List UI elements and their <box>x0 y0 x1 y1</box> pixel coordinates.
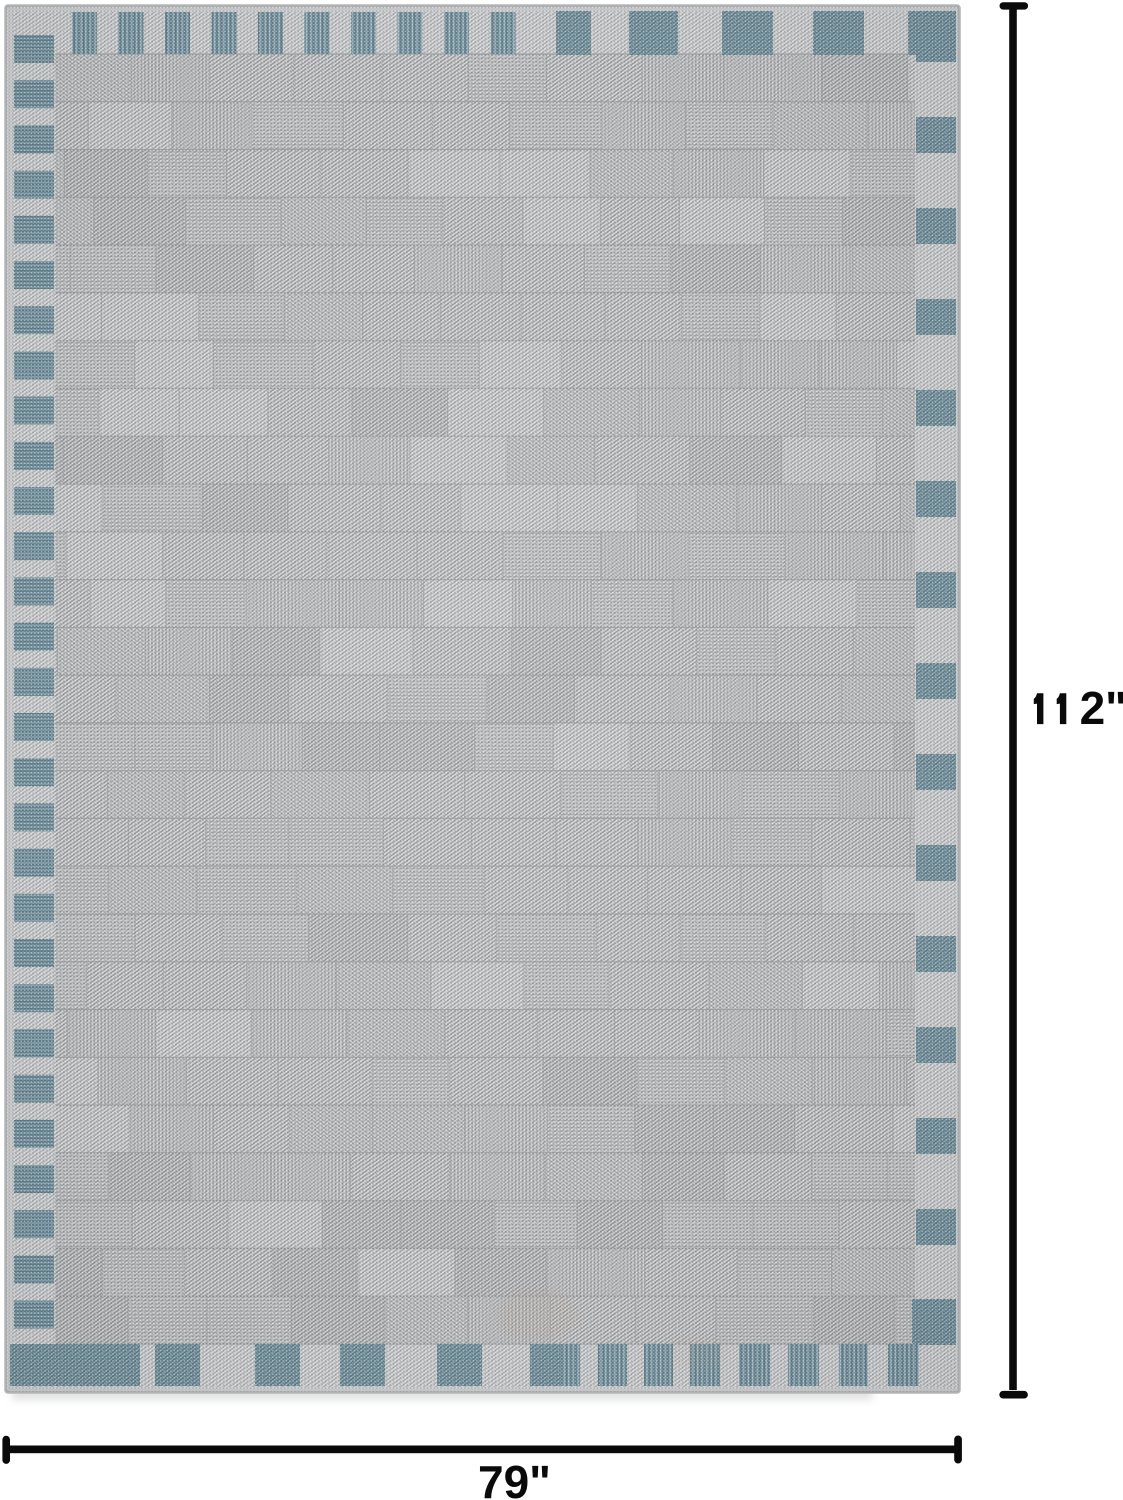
svg-text:79": 79" <box>478 1456 551 1500</box>
svg-text:2": 2" <box>1080 682 1123 734</box>
